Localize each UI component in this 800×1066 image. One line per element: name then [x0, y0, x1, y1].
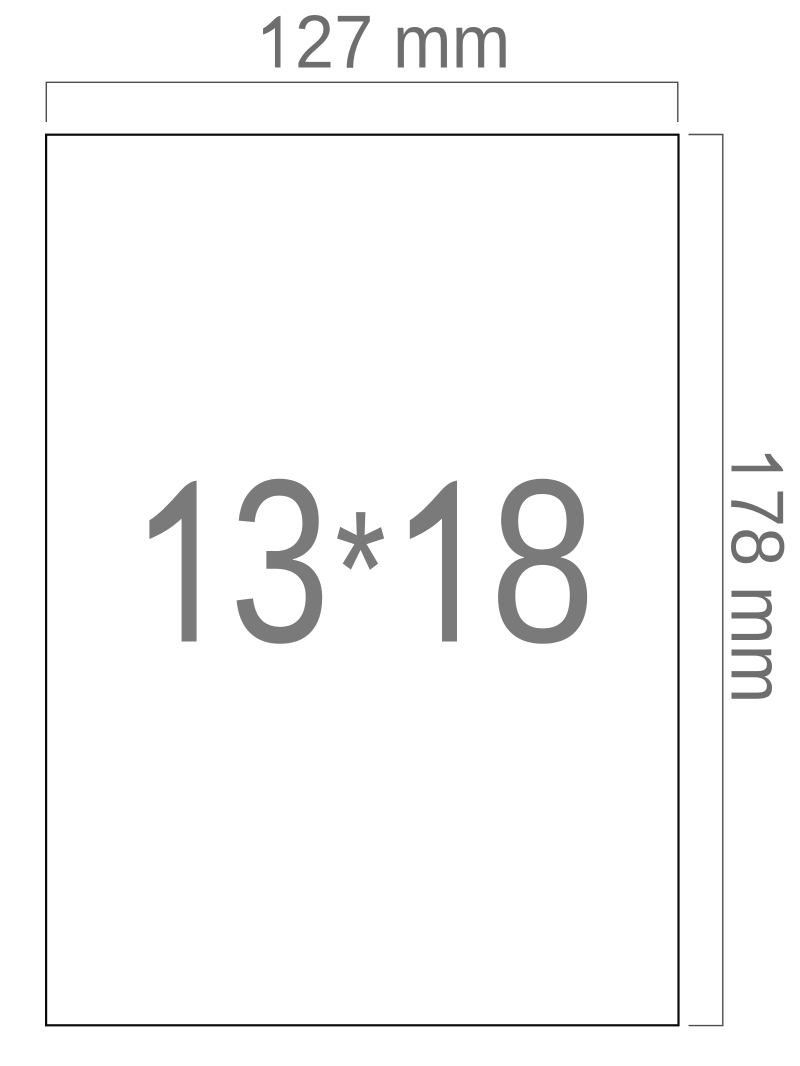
svg-text:3: 3 — [230, 431, 330, 691]
svg-text:27 mm: 27 mm — [295, 1, 510, 84]
svg-text:78 mm: 78 mm — [715, 488, 798, 703]
svg-text:*: * — [336, 478, 386, 658]
svg-text:8: 8 — [490, 432, 596, 692]
